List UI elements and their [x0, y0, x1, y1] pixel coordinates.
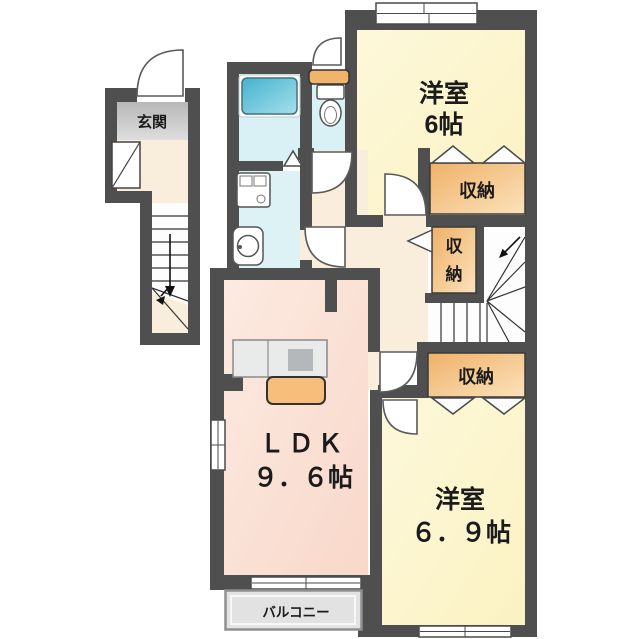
- toilet-icon: [317, 85, 344, 126]
- entrance-label: 玄関: [137, 113, 167, 131]
- storage-top-label: 収納: [459, 180, 495, 201]
- western-room-bottom-name: 洋室: [435, 485, 485, 514]
- entrance-door-arc: [137, 50, 183, 96]
- hall-floor-center: [357, 227, 428, 268]
- window-ldk-left: [211, 420, 225, 470]
- ldk-floor: [224, 280, 368, 575]
- ldk-size: ９．６帖: [253, 464, 353, 492]
- ldk-name: ＬＤＫ: [259, 430, 346, 458]
- window-room-bottom: [419, 626, 511, 637]
- stairs-lower-area: [428, 303, 525, 342]
- western-room-bottom-size: ６．９帖: [411, 519, 511, 547]
- storage-bottom-label: 収納: [458, 366, 494, 387]
- ldk-door-opening: [368, 352, 380, 390]
- kitchen-island: [267, 377, 325, 404]
- shoe-cabinet-icon: [112, 142, 140, 188]
- western-room-top-name: 洋室: [419, 79, 469, 108]
- floor-plan-drawing: 玄関 洋室 6帖 収納 収 納 収納 ＬＤＫ ９．６帖 洋室 ６．９帖 バルコニ…: [0, 0, 640, 639]
- stove-icon: [288, 349, 313, 371]
- storage-mid-label-bottom: 納: [446, 264, 463, 284]
- bathtub-icon: [242, 78, 297, 114]
- balcony-label: バルコニー: [262, 605, 329, 620]
- washing-machine-icon: [233, 227, 263, 265]
- window-ldk-balcony: [251, 577, 361, 589]
- washbasin-icon: [237, 173, 270, 207]
- toilet-door-arc: [313, 38, 341, 65]
- hall-floor-strip: [420, 303, 428, 342]
- room-top-door-opening: [383, 215, 426, 227]
- storage-mid-label-top: 収: [446, 237, 464, 256]
- toilet-counter: [309, 70, 349, 84]
- window-room-top: [376, 3, 477, 24]
- western-room-top-size: 6帖: [425, 111, 464, 139]
- floor-plan-page: 玄関 洋室 6帖 収納 収 納 収納 ＬＤＫ ９．６帖 洋室 ６．９帖 バルコニ…: [0, 0, 640, 639]
